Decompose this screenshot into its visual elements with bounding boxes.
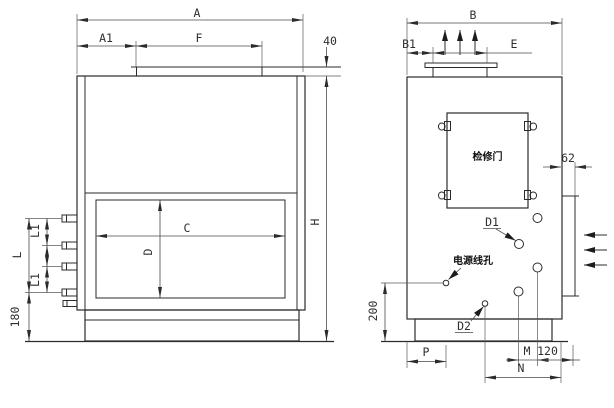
- front-view: A A1 F 40 H C: [8, 6, 341, 342]
- dim-label-m: M: [524, 344, 531, 358]
- pipe-stubs: [62, 215, 77, 307]
- pipe-stub: [62, 289, 77, 296]
- dim-label-h: H: [308, 218, 322, 225]
- dim-b: B: [407, 8, 562, 75]
- dim-label-f: F: [196, 31, 203, 45]
- dim-label-c: C: [184, 221, 191, 235]
- door-latch-icon: [439, 191, 451, 200]
- dim-label-62: 62: [561, 151, 575, 165]
- pipe-stub: [62, 215, 77, 222]
- bottom-extensions: [407, 272, 573, 383]
- dim-label-l: L: [10, 251, 24, 258]
- hole-power-cable: [443, 280, 449, 286]
- dim-p: P: [407, 345, 446, 362]
- dim-label-120: 120: [537, 344, 558, 358]
- leader-d1: D1: [483, 215, 516, 241]
- dim-label-180: 180: [8, 307, 22, 328]
- dim-h: H: [308, 76, 327, 341]
- dim-label-p: P: [423, 345, 430, 359]
- power-hole-label: 电源线孔: [453, 254, 493, 267]
- dim-40: 40: [323, 34, 337, 67]
- pipe-stub: [62, 242, 77, 249]
- side-view: 检修门: [366, 8, 607, 383]
- dim-label-d1: D1: [485, 215, 499, 229]
- dim-l1-upper: L1: [28, 219, 47, 246]
- dim-a1: A1: [77, 31, 136, 67]
- dim-62: 62: [543, 151, 592, 196]
- dim-d: D: [141, 200, 160, 298]
- dim-label-40: 40: [323, 34, 337, 48]
- dim-label-e: E: [511, 37, 518, 51]
- dim-180: 180: [8, 293, 29, 342]
- dim-l: L: [10, 219, 29, 293]
- dim-120: 120: [537, 344, 580, 360]
- dim-label-b: B: [470, 8, 477, 22]
- dim-label-d: D: [141, 248, 155, 255]
- door-latch-icon: [439, 122, 451, 131]
- dim-label-d2: D2: [457, 319, 471, 333]
- pipe-stub: [62, 263, 77, 270]
- dim-label-l1-upper: L1: [28, 224, 42, 238]
- hole-mid-right: [533, 263, 542, 272]
- side-flange-strip: [562, 196, 579, 296]
- dim-200: 200: [366, 283, 443, 341]
- door-latch-icon: [525, 191, 537, 200]
- dim-e: E: [433, 37, 532, 63]
- hole-d2: [482, 301, 488, 307]
- leader-power-hole: 电源线孔: [449, 254, 494, 280]
- dim-l1-lower: L1: [28, 267, 47, 293]
- dim-label-a: A: [194, 6, 201, 20]
- access-door-label: 检修门: [473, 150, 503, 163]
- airflow-up-arrows: [445, 30, 475, 55]
- dim-label-b1: B1: [402, 37, 416, 51]
- dim-f: F: [136, 31, 262, 67]
- dim-c: C: [96, 221, 285, 236]
- dim-n: N: [485, 361, 561, 378]
- hole-lower: [514, 287, 523, 296]
- side-base-pedestal: [415, 319, 552, 341]
- door-latch-icon: [525, 122, 537, 131]
- dim-label-a1: A1: [99, 31, 113, 45]
- dim-label-l1-lower: L1: [28, 273, 42, 287]
- drawing-canvas: A A1 F 40 H C: [0, 0, 614, 408]
- base-pedestal: [85, 310, 299, 341]
- leader-d2: D2: [455, 307, 484, 334]
- dim-label-n: N: [518, 361, 525, 375]
- hole-top-right: [533, 214, 542, 223]
- coil-panel: [96, 200, 285, 298]
- airflow-in-arrows: [584, 235, 607, 265]
- ahu-dimension-drawing: A A1 F 40 H C: [0, 0, 614, 408]
- hole-d1: [515, 240, 524, 249]
- drain-stub: [63, 301, 77, 307]
- top-duct-flange: [425, 63, 497, 68]
- dim-label-200: 200: [366, 301, 380, 322]
